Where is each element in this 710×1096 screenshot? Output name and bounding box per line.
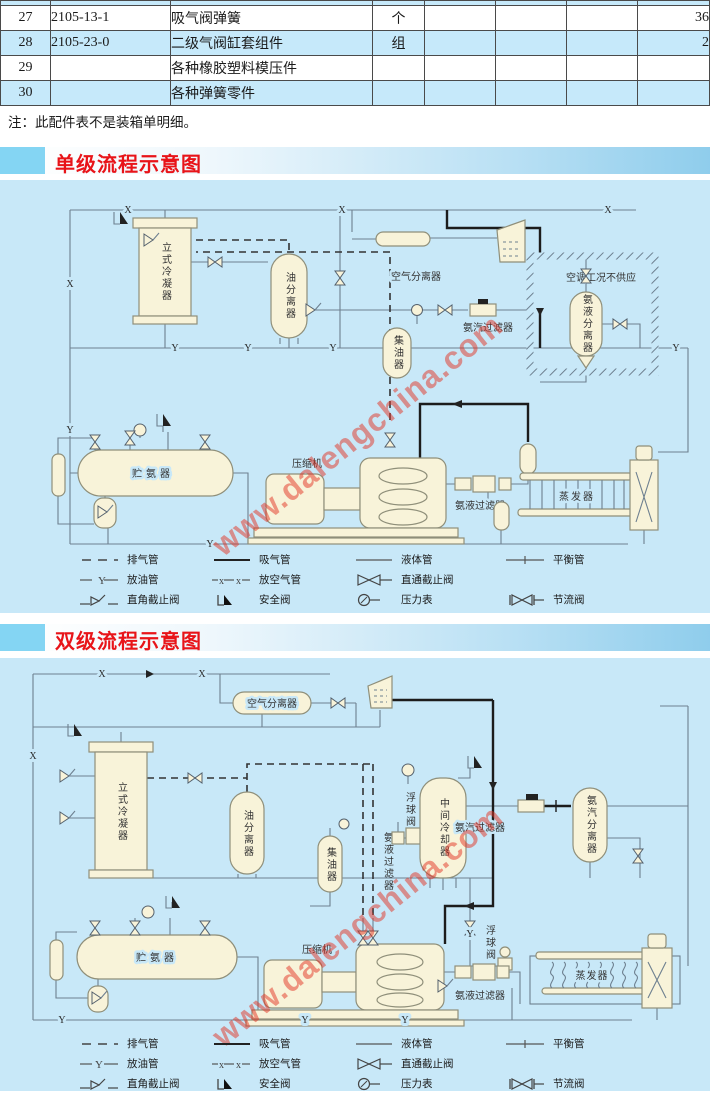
receiver-vessel: 贮氨器 <box>50 896 237 1012</box>
vapor-filter-label: 氨汽过滤器 <box>455 821 505 834</box>
oil-separator-vessel: 油分离器 <box>271 254 307 338</box>
condenser-vessel: 立式冷凝器 <box>89 742 153 878</box>
quantity: 36 <box>638 6 710 31</box>
legend-item-pressure-gauge: 压力表 <box>352 590 504 609</box>
oil-separator-label: 油分离器 <box>242 809 254 858</box>
flow-arrow <box>536 308 544 316</box>
pressure-gauge-icon <box>339 819 349 829</box>
title-accent-square <box>0 147 45 174</box>
manual-page: 27 2105-13-1 吸气阀弹簧 个 36 28 2105-23-0 二级气… <box>0 0 710 1096</box>
liquid-filter-label: 氨液过滤器 <box>455 989 505 1002</box>
part-number: 2105-13-1 <box>51 6 171 31</box>
condenser-label: 立式冷凝器 <box>116 781 128 842</box>
balance-line-icon <box>504 1037 548 1051</box>
legend-item-angle-valve: 直角截止阀 <box>78 590 210 609</box>
globe-valve-icon <box>200 435 210 449</box>
svg-text:Y: Y <box>95 1059 103 1071</box>
pressure-gauge-icon <box>352 593 396 607</box>
row-no: 29 <box>1 56 51 81</box>
globe-valve-icon <box>613 319 627 329</box>
legend-item-pressure-gauge: 压力表 <box>352 1074 504 1093</box>
svg-text:Y: Y <box>98 575 106 587</box>
svg-text:x: x <box>236 576 241 587</box>
float-valve-label: 浮球阀 <box>484 925 496 961</box>
angle-valve-icon <box>78 1077 122 1091</box>
safety-valve-icon <box>210 1077 254 1091</box>
receiver-vessel: 贮氨器 <box>52 414 233 528</box>
pipe-letter-y: Y <box>171 343 178 354</box>
receiver-label: 贮氨器 <box>136 951 178 964</box>
liquid-separator-vessel: 氨液分离器 <box>570 292 602 368</box>
diagram-legend: 排气管 吸气管 液体管 平衡管 Y 放油管 xx 放空气管 <box>78 550 658 609</box>
globe-valve-icon <box>331 698 345 708</box>
compressor-unit: 压缩机 <box>248 457 464 544</box>
globe-valve-icon <box>633 849 643 863</box>
float-valve-device: 浮球阀 <box>484 925 513 970</box>
pressure-gauge-icon <box>352 1077 396 1091</box>
solid-line-icon <box>352 553 396 567</box>
single-stage-diagram: 空调工况不供应 立式冷凝器 油分离器 空气分离器 <box>0 180 710 613</box>
flow-arrow <box>146 670 154 678</box>
globe-valve-icon <box>125 431 135 445</box>
pipe-letter-x: X <box>29 751 37 762</box>
legend-item-liquid: 液体管 <box>352 1034 504 1053</box>
vapor-filter-symbol: 氨汽过滤器 <box>455 794 544 834</box>
diagram-legend: 排气管 吸气管 液体管 平衡管 Y 放油管 xx 放空气管 <box>78 1034 658 1093</box>
legend-item-liquid: 液体管 <box>352 550 504 569</box>
table-row: 30 各种弹簧零件 <box>1 81 710 106</box>
solid-thick-line-icon <box>210 1037 254 1051</box>
float-valve-label: 浮球阀 <box>404 792 416 828</box>
pipe-letter-x: X <box>338 205 346 216</box>
oil-separator-label: 油分离器 <box>284 271 296 320</box>
legend-item-air-release: xx 放空气管 <box>210 1054 352 1073</box>
pipe-letter-x: X <box>198 669 206 680</box>
globe-valve-icon <box>90 435 100 449</box>
legend-item-suction: 吸气管 <box>210 550 352 569</box>
y-line-icon: Y <box>78 1057 122 1071</box>
legend-item-air-release: xx 放空气管 <box>210 570 352 589</box>
agitator-unit <box>630 446 658 530</box>
air-separator-vessel: 空气分离器 <box>233 692 311 714</box>
globe-valve-icon <box>352 573 396 587</box>
safety-valve-icon <box>210 593 254 607</box>
safety-valve-icon <box>468 756 482 768</box>
section-title: 单级流程示意图 <box>55 148 202 177</box>
safety-valve-icon <box>68 724 82 736</box>
flow-arrow <box>464 902 474 910</box>
pipe-letter-y: Y <box>58 1015 65 1026</box>
angle-valve-icon <box>438 979 453 992</box>
section-title: 双级流程示意图 <box>55 625 202 654</box>
legend-item-globe-valve: 直通截止阀 <box>352 570 504 589</box>
safety-valve-icon <box>166 896 180 908</box>
section-title-bar: 双级流程示意图 <box>0 624 710 651</box>
legend-item-balance: 平衡管 <box>504 550 644 569</box>
table-row: 28 2105-23-0 二级气阀缸套组件 组 2 <box>1 31 710 56</box>
legend-item-oil-drain: Y 放油管 <box>78 1054 210 1073</box>
inter-cooler-label: 中间冷却器 <box>438 797 450 858</box>
globe-valve-icon <box>438 305 452 315</box>
table-footnote: 注：此配件表不是装箱单明细。 <box>8 111 197 131</box>
evaporator-unit: 蒸发器 <box>494 444 634 530</box>
title-accent-square <box>0 624 45 651</box>
row-no: 30 <box>1 81 51 106</box>
globe-valve-icon <box>188 773 202 783</box>
legend-item-exhaust: 排气管 <box>78 1034 210 1053</box>
safety-valve-icon <box>157 414 171 426</box>
x-line-icon: xx <box>210 1057 254 1071</box>
table-row: 27 2105-13-1 吸气阀弹簧 个 36 <box>1 6 710 31</box>
air-separator-label: 空气分离器 <box>391 270 441 283</box>
globe-valve-icon <box>368 931 378 945</box>
y-line-icon: Y <box>78 573 122 587</box>
unit: 组 <box>373 31 425 56</box>
condenser-label: 立式冷凝器 <box>160 241 172 302</box>
solid-line-icon <box>352 1037 396 1051</box>
part-name: 吸气阀弹簧 <box>171 6 373 31</box>
pipe-letter-x: X <box>124 205 132 216</box>
condenser-vessel: 立式冷凝器 <box>133 218 197 324</box>
compressor-unit: 压缩机 <box>246 943 464 1026</box>
pipe-letter-y: Y <box>244 343 251 354</box>
oil-collector-vessel: 集油器 <box>383 305 423 379</box>
vapor-separator-vessel: 氨汽分离器 <box>573 788 607 862</box>
pipe-letter-x: X <box>66 279 74 290</box>
quantity: 2 <box>638 31 710 56</box>
air-separator-vessel: 空气分离器 <box>376 232 441 283</box>
evaporator-label: 蒸发器 <box>576 969 609 982</box>
svg-text:x: x <box>219 1060 224 1071</box>
evaporator-label: 蒸发器 <box>559 490 595 503</box>
vapor-filter-label: 氨汽过滤器 <box>463 321 513 334</box>
pipe-letter-x: X <box>98 669 106 680</box>
flow-arrow <box>452 400 462 408</box>
section-title-bar: 单级流程示意图 <box>0 147 710 174</box>
funnel-tank <box>368 676 392 708</box>
svg-text:x: x <box>236 1060 241 1071</box>
oil-collector-label: 集油器 <box>325 846 337 883</box>
part-number <box>51 81 171 106</box>
solid-thick-line-icon <box>210 553 254 567</box>
angle-valve-icon <box>78 593 122 607</box>
vapor-separator-label: 氨汽分离器 <box>585 794 597 855</box>
x-line-icon: xx <box>210 573 254 587</box>
oil-separator-vessel: 油分离器 <box>230 792 264 874</box>
globe-valve-icon <box>200 921 210 935</box>
table-row: 29 各种橡胶塑料模压件 <box>1 56 710 81</box>
globe-valve-icon <box>90 921 100 935</box>
globe-valve-icon <box>130 921 140 935</box>
part-number: 2105-23-0 <box>51 31 171 56</box>
pipe-letter-x: X <box>604 205 612 216</box>
row-no: 28 <box>1 31 51 56</box>
legend-item-balance: 平衡管 <box>504 1034 644 1053</box>
liquid-filter-symbol: 氨液过滤器 <box>455 964 509 1002</box>
unit: 个 <box>373 6 425 31</box>
pipe-letter-y: Y <box>66 425 73 436</box>
pipe-letter-y: Y <box>466 929 473 940</box>
two-stage-panel: 空气分离器 立式冷凝器 <box>0 658 710 1091</box>
part-name: 各种弹簧零件 <box>171 81 373 106</box>
legend-item-exhaust: 排气管 <box>78 550 210 569</box>
row-no: 27 <box>1 6 51 31</box>
compressor-label: 压缩机 <box>292 457 322 470</box>
pressure-gauge-icon <box>412 305 423 316</box>
pressure-gauge-icon <box>134 424 146 436</box>
part-name: 各种橡胶塑料模压件 <box>171 56 373 81</box>
liquid-separator-label: 氨液分离器 <box>581 293 593 354</box>
legend-item-safety-valve: 安全阀 <box>210 1074 352 1093</box>
pressure-gauge-icon <box>142 906 154 918</box>
pipe-letter-y: Y <box>206 539 213 550</box>
globe-valve-icon <box>358 931 368 945</box>
pipe-letter-y: Y <box>301 1015 308 1026</box>
dashed-line-icon <box>78 553 122 567</box>
part-name: 二级气阀缸套组件 <box>171 31 373 56</box>
legend-item-globe-valve: 直通截止阀 <box>352 1054 504 1073</box>
no-supply-label: 空调工况不供应 <box>566 271 636 284</box>
float-valve-device: 浮球阀 <box>392 792 422 844</box>
legend-item-safety-valve: 安全阀 <box>210 590 352 609</box>
legend-item-suction: 吸气管 <box>210 1034 352 1053</box>
globe-valve-icon <box>352 1057 396 1071</box>
throttle-valve-icon <box>504 1077 548 1091</box>
oil-collector-label: 集油器 <box>392 334 404 371</box>
throttle-valve-icon <box>504 593 548 607</box>
legend-item-oil-drain: Y 放油管 <box>78 570 210 589</box>
legend-item-throttle-valve: 节流阀 <box>504 1074 644 1093</box>
balance-line-icon <box>504 553 548 567</box>
agitator-unit <box>642 934 672 1008</box>
suction-pipe <box>392 700 571 944</box>
flow-arrow <box>489 782 497 790</box>
globe-valve-icon <box>208 257 222 267</box>
part-number <box>51 56 171 81</box>
svg-text:x: x <box>219 576 224 587</box>
pipe-letter-y: Y <box>329 343 336 354</box>
oil-collector-vessel: 集油器 <box>318 819 349 892</box>
single-stage-panel: 空调工况不供应 立式冷凝器 油分离器 空气分离器 <box>0 180 710 613</box>
globe-valve-icon <box>335 271 345 285</box>
pipe-letter-y: Y <box>401 1015 408 1026</box>
dashed-line-icon <box>78 1037 122 1051</box>
parts-table: 27 2105-13-1 吸气阀弹簧 个 36 28 2105-23-0 二级气… <box>0 0 710 106</box>
pressure-gauge-icon <box>402 764 414 776</box>
pipe-letter-y: Y <box>672 343 679 354</box>
two-stage-diagram: 空气分离器 立式冷凝器 <box>0 658 710 1091</box>
legend-item-angle-valve: 直角截止阀 <box>78 1074 210 1093</box>
vapor-filter-symbol: 氨汽过滤器 <box>463 299 513 334</box>
funnel-tank <box>497 220 525 262</box>
globe-valve-icon <box>385 433 395 447</box>
legend-item-throttle-valve: 节流阀 <box>504 590 644 609</box>
receiver-label: 贮氨器 <box>132 467 174 480</box>
compressor-label: 压缩机 <box>302 943 332 956</box>
air-separator-label: 空气分离器 <box>247 697 297 710</box>
